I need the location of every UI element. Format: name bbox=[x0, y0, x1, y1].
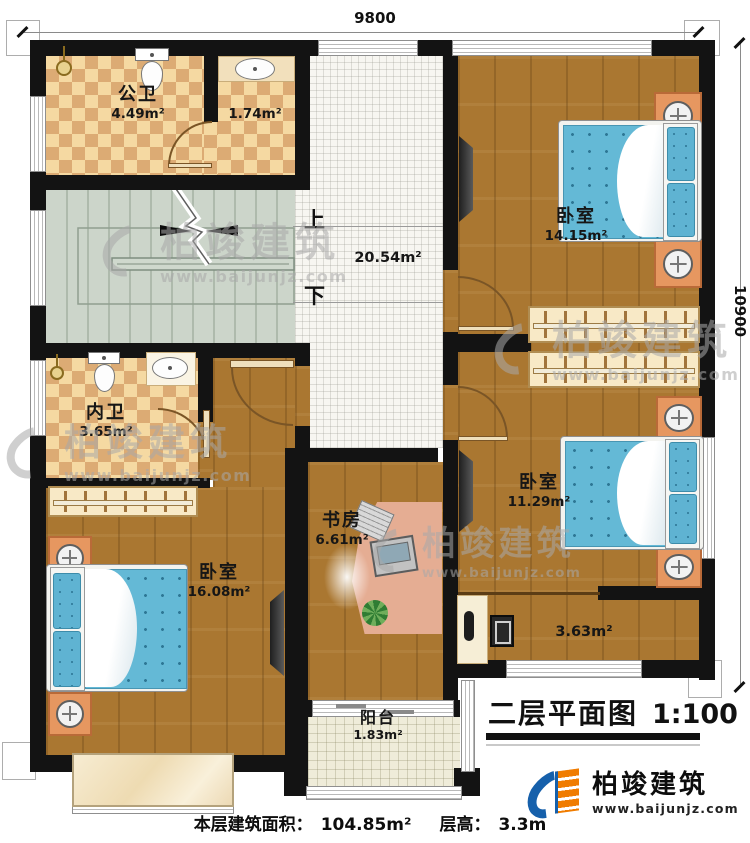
watermark: 柏竣建筑 www.baijunjz.com bbox=[376, 526, 581, 580]
nightstand bbox=[654, 240, 702, 288]
room-label-balcony: 阳台 1.83m² bbox=[346, 708, 410, 742]
wall bbox=[204, 56, 218, 122]
room-label-study: 书房 6.61m² bbox=[300, 510, 384, 548]
bed bbox=[46, 564, 188, 692]
window bbox=[452, 40, 652, 56]
room-label-hall: 20.54m² bbox=[350, 250, 426, 267]
door-threshold bbox=[443, 270, 458, 332]
drawing-scale: 1:100 bbox=[652, 699, 738, 730]
dimension-top-value: 9800 bbox=[320, 9, 430, 27]
dimension-line-top bbox=[24, 32, 700, 33]
nightstand bbox=[656, 546, 702, 588]
room-label-bedroom-top: 卧室 14.15m² bbox=[534, 206, 618, 244]
tv-icon bbox=[459, 450, 473, 532]
room-label-wash-room: 1.74m² bbox=[222, 106, 288, 122]
balcony-post bbox=[284, 768, 308, 796]
wash-basin bbox=[235, 58, 275, 80]
watermark: 柏竣建筑 www.baijunjz.com bbox=[498, 320, 739, 384]
lamp-icon bbox=[663, 249, 694, 280]
title-underline bbox=[486, 733, 700, 740]
door-threshold bbox=[295, 366, 310, 426]
window bbox=[506, 660, 642, 678]
bay-window bbox=[72, 753, 234, 807]
toilet-tank bbox=[135, 48, 169, 61]
dimension-line-right bbox=[740, 42, 741, 688]
drawing-title: 二层平面图 1:100 bbox=[488, 692, 738, 732]
window bbox=[318, 40, 418, 56]
wall bbox=[296, 448, 438, 462]
wall bbox=[30, 175, 310, 190]
toilet-tank bbox=[88, 352, 120, 364]
floor-height-label: 层高： bbox=[439, 810, 490, 835]
room-label-corridor: 3.63m² bbox=[546, 624, 622, 641]
nightstand bbox=[48, 692, 92, 736]
shower-head bbox=[56, 60, 72, 76]
door-leaf bbox=[458, 436, 508, 441]
wash-basin bbox=[152, 357, 188, 379]
stair-down-label: 下 bbox=[304, 286, 325, 307]
floor-plan: 上 下 公卫 4.49m² 1.74m² 20.54m² 卧室 14.15m² … bbox=[0, 0, 750, 843]
floor-area-label: 本层建筑面积： bbox=[194, 810, 313, 835]
room-label-public-bath: 公卫 4.49m² bbox=[96, 84, 180, 122]
watermark: 柏竣建筑 www.baijunjz.com bbox=[10, 424, 251, 485]
floor-height-value: 3.3m bbox=[498, 815, 546, 835]
nightstand bbox=[656, 396, 702, 440]
dimension-right-value: 10900 bbox=[731, 261, 749, 361]
plant-icon bbox=[362, 600, 388, 626]
floor-area-value: 104.85m² bbox=[321, 815, 412, 835]
window bbox=[30, 96, 46, 172]
brand-website: www.baijunjz.com bbox=[592, 801, 739, 816]
footer-stats: 本层建筑面积： 104.85m² 层高： 3.3m bbox=[140, 810, 600, 835]
wardrobe bbox=[48, 486, 198, 517]
wall bbox=[598, 586, 702, 600]
balcony-railing bbox=[461, 680, 475, 772]
window bbox=[30, 210, 46, 306]
title-underline-thin bbox=[486, 744, 700, 746]
wall bbox=[295, 358, 310, 366]
tv-icon bbox=[270, 590, 284, 676]
desk-chair bbox=[324, 544, 370, 610]
door-threshold bbox=[443, 385, 458, 440]
drawing-title-text: 二层平面图 bbox=[488, 692, 638, 732]
watermark: 柏竣建筑 www.baijunjz.com bbox=[106, 222, 347, 286]
wall bbox=[285, 448, 308, 770]
room-label-bedroom-right: 卧室 11.29m² bbox=[494, 472, 584, 510]
balcony-railing bbox=[306, 786, 462, 800]
lamp-icon bbox=[56, 700, 84, 728]
brand-name: 柏竣建筑 bbox=[592, 772, 739, 798]
wall bbox=[443, 56, 458, 270]
door-leaf bbox=[168, 163, 212, 168]
lamp-icon bbox=[664, 404, 693, 432]
door-leaf bbox=[230, 360, 294, 368]
room-label-bedroom-left: 卧室 16.08m² bbox=[174, 562, 264, 600]
watermark-logo-icon bbox=[0, 416, 67, 487]
shower-head bbox=[50, 366, 64, 380]
tv-icon bbox=[459, 136, 473, 222]
stool bbox=[464, 611, 474, 641]
lamp-icon bbox=[664, 554, 693, 581]
wall bbox=[295, 40, 310, 190]
wall bbox=[295, 426, 310, 448]
cabinet bbox=[490, 615, 514, 647]
